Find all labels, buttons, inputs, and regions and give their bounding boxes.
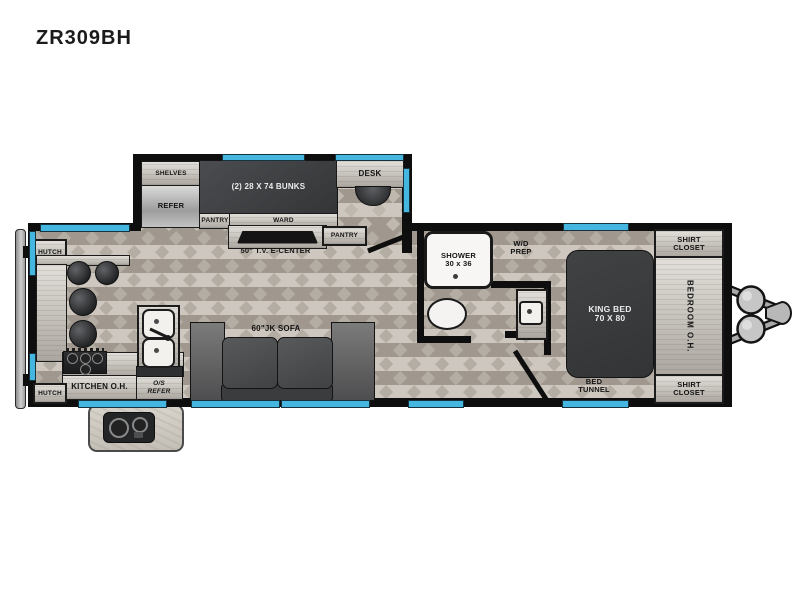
hutch-bottom: HUTCH [33,383,67,404]
shelves-cabinet: SHELVES [141,161,201,186]
king-bed: KING BED70 X 80 [566,250,654,378]
sofa-cushion [277,337,333,389]
sofa-end-table [190,322,225,401]
bedroom-oh-label: BEDROOM O.H. [685,280,694,352]
kitchen-overhead: KITCHEN O.H. [62,375,137,400]
bar-stool [69,320,97,348]
bedroom-overhead: BEDROOM O.H. [654,256,724,377]
burner-icon [92,353,103,364]
bar-counter-left [36,264,67,362]
burner-icon [80,353,91,364]
pantry-label: PANTRY [331,232,358,239]
shower-label: SHOWER30 x 36 [441,252,476,268]
bed-tunnel-label: BEDTUNNEL [578,378,610,394]
bunks-label: (2) 28 X 74 BUNKS [232,183,306,192]
bar-stool [95,261,119,285]
rear-window [29,231,36,276]
kitchen-oh-label: KITCHEN O.H. [71,383,128,392]
shower-drain [453,274,458,279]
slide-window [403,168,410,213]
bath-wall-wd [491,281,551,288]
toilet [427,298,467,330]
griddle-cooktop [103,412,155,443]
wd-prep-area: W/DPREP [490,240,552,256]
propane-tank-icon [738,287,765,314]
window [191,400,280,408]
shirt-closet-label: SHIRTCLOSET [673,236,705,252]
burner-icon [132,417,148,433]
shower: SHOWER30 x 36 [424,231,493,289]
sofa-label: 60"JK SOFA [252,325,301,334]
tv-icon [237,231,318,244]
outside-refer: O/SREFER [135,375,183,400]
pantry-main: PANTRY [322,226,367,246]
slide-window [335,154,404,161]
pantry-label: PANTRY [201,217,228,224]
shirt-closet-top: SHIRTCLOSET [654,229,724,259]
tv-center-label: 50" T.V. E-CENTER [240,247,310,255]
floorplan-page: ZR309BH SHELVES REFER (2) 28 X 74 BUNKS … [0,0,800,600]
stove-knobs [66,348,104,352]
sofa-cushion [222,337,278,389]
bath-wall-bottom-left [417,336,471,343]
shelves-label: SHELVES [155,170,186,177]
entry-door-jamb [402,223,412,253]
window [281,400,370,408]
burner-icon [109,418,129,438]
bath-wall-left [417,231,424,343]
kitchen-sink [142,338,175,368]
sink-drain [154,319,159,324]
bar-stool [69,288,97,316]
slide-window [222,154,305,161]
hutch-label: HUTCH [38,390,62,397]
sofa-label-wrap: 60"JK SOFA [213,325,339,334]
desk-label: DESK [358,170,381,179]
tv-center-label-wrap: 50" T.V. E-CENTER [213,247,338,255]
bed-tunnel-wrap: BEDTUNNEL [556,378,632,394]
sofa-end-table [331,322,375,401]
rear-window [29,353,36,381]
bar-stool [67,261,91,285]
griddle-control [134,432,143,438]
window [408,400,464,408]
king-bed-label: KING BED70 X 80 [588,305,631,323]
burner-icon [80,364,91,375]
shirt-closet-label: SHIRTCLOSET [673,381,705,397]
window [78,400,167,408]
ward-label: WARD [273,217,294,224]
wd-prep-label: W/DPREP [510,240,531,256]
window [563,223,629,231]
propane-tank-icon [738,316,765,343]
window [40,224,130,232]
window [562,400,629,408]
desk: DESK [336,160,404,188]
bunk-beds: (2) 28 X 74 BUNKS [199,160,338,215]
sink-drain [154,348,159,353]
refer-label: REFER [158,202,184,210]
os-refer-label: O/SREFER [147,380,170,394]
kitchen-sink [142,309,175,339]
slide-wall-left [133,154,141,231]
stove-cooktop [63,351,107,374]
pantry-slide: PANTRY [199,213,231,229]
burner-icon [67,353,78,364]
shirt-closet-bottom: SHIRTCLOSET [654,374,724,404]
refrigerator: REFER [141,185,201,228]
vanity-drain [527,309,532,314]
